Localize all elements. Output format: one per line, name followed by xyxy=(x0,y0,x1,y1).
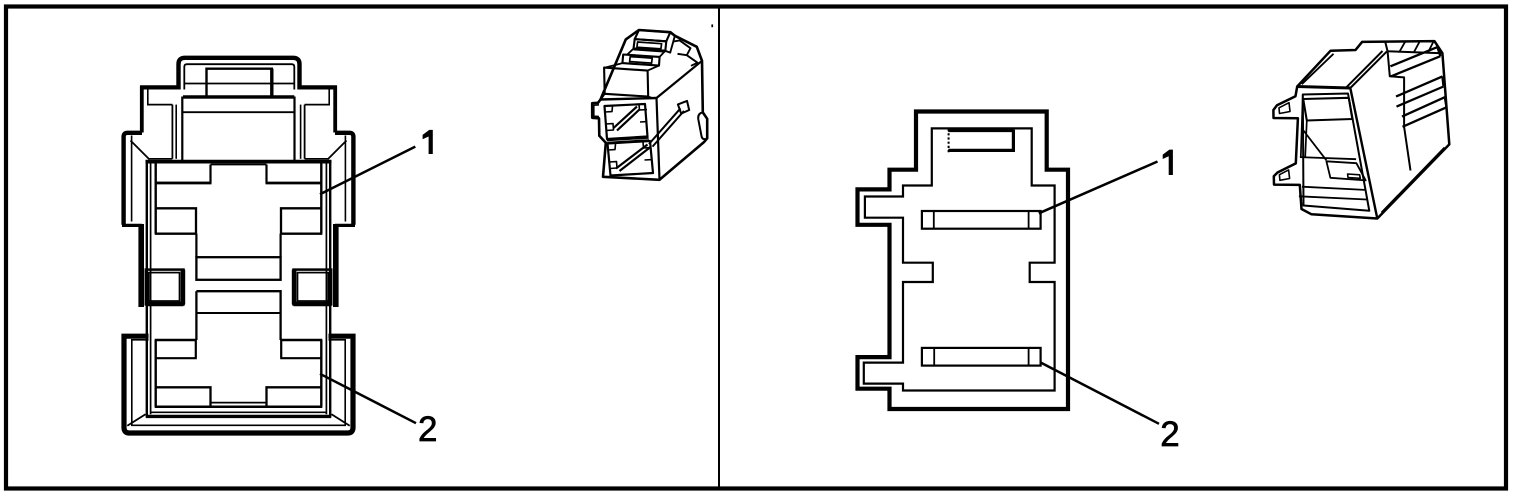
svg-text:2: 2 xyxy=(1160,415,1179,454)
svg-text:2: 2 xyxy=(418,410,437,449)
